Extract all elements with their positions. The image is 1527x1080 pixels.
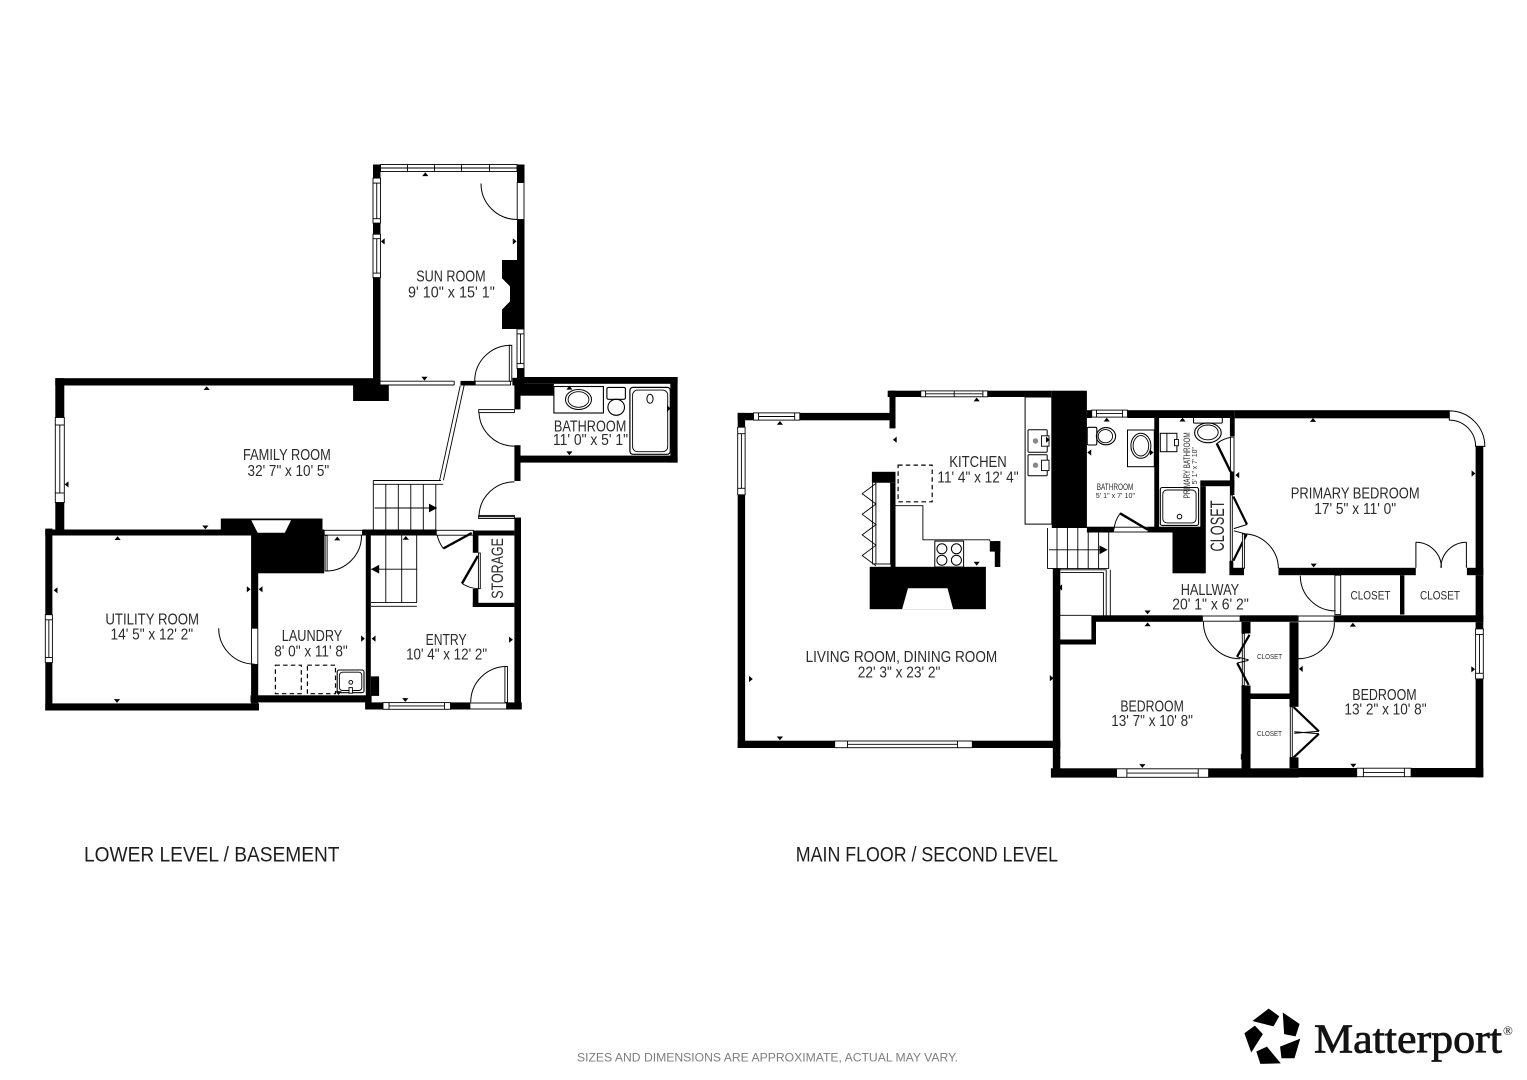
svg-text:FAMILY ROOM: FAMILY ROOM — [243, 447, 331, 464]
svg-text:Matterport: Matterport — [1314, 1016, 1503, 1062]
svg-text:5' 1" x 7' 10": 5' 1" x 7' 10" — [1190, 447, 1199, 484]
svg-text:11' 0" x 5' 1": 11' 0" x 5' 1" — [553, 432, 628, 449]
svg-text:STORAGE: STORAGE — [488, 538, 507, 599]
svg-text:17' 5" x 11' 0": 17' 5" x 11' 0" — [1314, 501, 1396, 518]
svg-text:10' 4" x 12' 2": 10' 4" x 12' 2" — [406, 647, 487, 664]
svg-text:CLOSET: CLOSET — [1257, 652, 1282, 661]
svg-text:MAIN FLOOR / SECOND LEVEL: MAIN FLOOR / SECOND LEVEL — [796, 843, 1058, 867]
svg-text:14' 5" x 12' 2": 14' 5" x 12' 2" — [111, 627, 194, 644]
svg-text:SUN ROOM: SUN ROOM — [416, 269, 485, 286]
svg-text:CLOSET: CLOSET — [1257, 729, 1282, 738]
svg-text:CLOSET: CLOSET — [1351, 589, 1392, 603]
svg-text:LOWER LEVEL / BASEMENT: LOWER LEVEL / BASEMENT — [84, 843, 340, 867]
svg-text:20' 1" x 6' 2": 20' 1" x 6' 2" — [1172, 597, 1249, 614]
svg-text:CLOSET: CLOSET — [1208, 500, 1229, 551]
svg-text:SIZES AND DIMENSIONS ARE APPRO: SIZES AND DIMENSIONS ARE APPROXIMATE, AC… — [577, 1051, 958, 1065]
svg-text:CLOSET: CLOSET — [1420, 589, 1461, 603]
svg-text:11' 4" x 12' 4": 11' 4" x 12' 4" — [937, 469, 1018, 486]
svg-text:8' 0" x 11' 8": 8' 0" x 11' 8" — [274, 643, 348, 660]
svg-text:32' 7" x 10' 5": 32' 7" x 10' 5" — [248, 463, 330, 480]
svg-text:5' 1" x 7' 10": 5' 1" x 7' 10" — [1096, 491, 1135, 500]
svg-text:13' 7" x 10' 8": 13' 7" x 10' 8" — [1111, 713, 1193, 730]
svg-text:13' 2" x 10' 8": 13' 2" x 10' 8" — [1344, 702, 1426, 719]
svg-text:LIVING ROOM, DINING ROOM: LIVING ROOM, DINING ROOM — [806, 649, 998, 666]
svg-text:®: ® — [1503, 1023, 1513, 1038]
svg-text:22' 3" x 23' 2": 22' 3" x 23' 2" — [858, 665, 941, 682]
svg-text:9' 10" x 15' 1": 9' 10" x 15' 1" — [408, 285, 495, 302]
